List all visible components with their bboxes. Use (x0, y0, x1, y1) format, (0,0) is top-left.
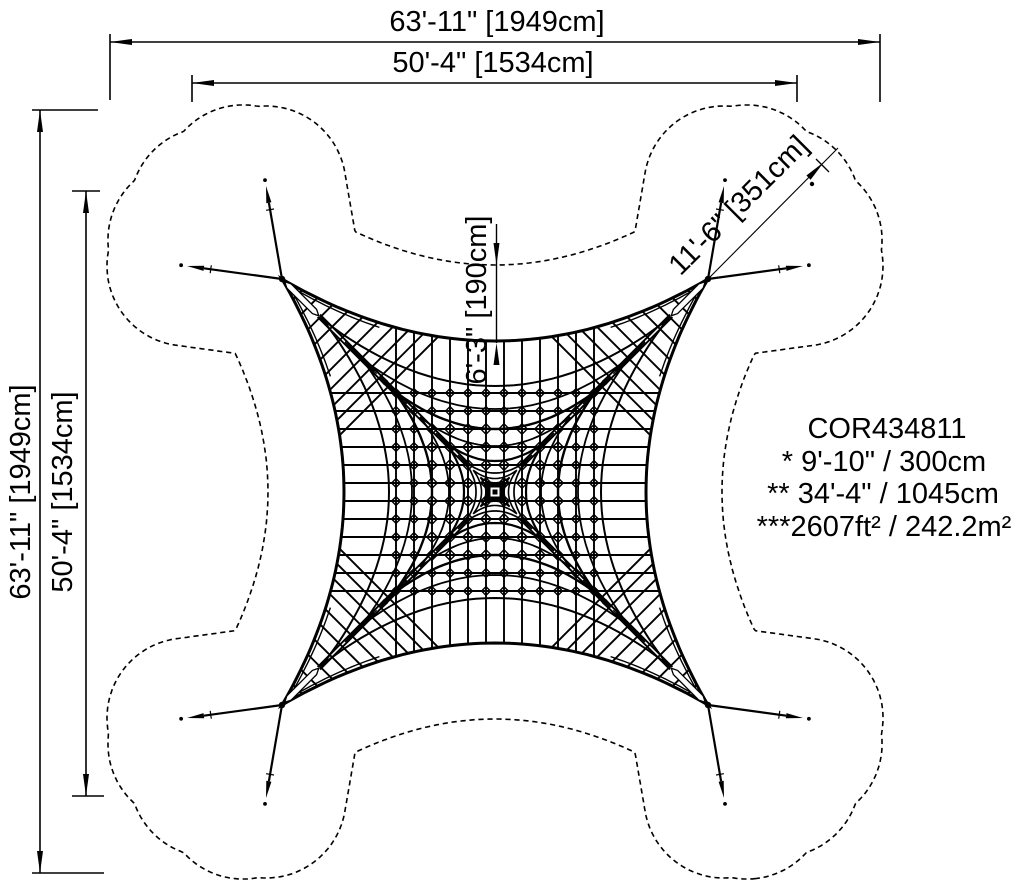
svg-text:6'-3" [190cm]: 6'-3" [190cm] (461, 216, 493, 385)
svg-text:** 34'-4" / 1045cm: ** 34'-4" / 1045cm (767, 478, 999, 510)
svg-text:COR434811: COR434811 (807, 413, 966, 445)
svg-text:50'-4" [1534cm]: 50'-4" [1534cm] (392, 47, 593, 79)
svg-text:* 9'-10" / 300cm: * 9'-10" / 300cm (782, 446, 986, 478)
svg-text:63'-11" [1949cm]: 63'-11" [1949cm] (5, 384, 37, 599)
svg-text:***2607ft² / 242.2m²: ***2607ft² / 242.2m² (757, 511, 1012, 543)
svg-text:63'-11" [1949cm]: 63'-11" [1949cm] (389, 6, 604, 38)
svg-text:50'-4" [1534cm]: 50'-4" [1534cm] (47, 391, 79, 592)
